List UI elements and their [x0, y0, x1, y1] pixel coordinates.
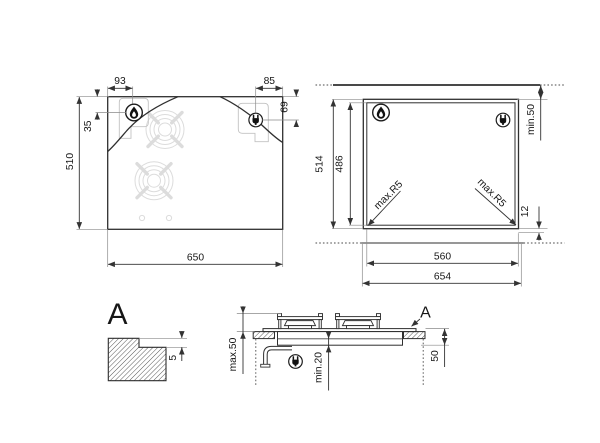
burner-profile-right: [336, 314, 381, 329]
section-a-label: A: [420, 305, 431, 322]
dim-93-label: 93: [114, 76, 126, 87]
detail-a-callout: A: [412, 305, 432, 327]
tear-curve-left: [108, 97, 178, 152]
dim-wall-clearance: min.50: [517, 85, 548, 140]
max-50-label: max.50: [228, 337, 239, 371]
plug-icon: [289, 355, 303, 369]
gas-pipe: [264, 346, 292, 364]
dim-50-label: 50: [430, 350, 441, 362]
dim-hob-width: 650: [108, 230, 283, 267]
dim-rear-gap: 12: [519, 206, 548, 241]
min-20-label: min.20: [313, 352, 324, 383]
plug-icon: [249, 113, 263, 127]
dim-burner-offset-y: 35: [77, 89, 127, 132]
min-50-label: min.50: [526, 104, 537, 135]
detail-a: A 5: [107, 298, 187, 381]
dim-514-label: 514: [314, 155, 325, 172]
dim-35-label: 35: [83, 120, 94, 132]
detail-a-label: A: [107, 298, 127, 331]
dim-486-label: 486: [334, 155, 345, 172]
dim-5-label: 5: [168, 355, 179, 361]
worktop-rebate-block: [108, 338, 166, 380]
flame-icon: [126, 104, 143, 121]
hob-top-view: 93 85 35 69 510: [65, 76, 299, 267]
burner-grate-front-icon: [135, 162, 173, 200]
cutout-rect: [367, 103, 515, 225]
dim-560-label: 560: [434, 251, 451, 262]
dim-654-label: 654: [434, 271, 451, 282]
flame-icon: [373, 104, 390, 121]
worktop-left-block: [253, 332, 274, 339]
dim-cutout-width: 560: [367, 229, 519, 266]
dim-85-label: 85: [264, 76, 276, 87]
burner-profile-left: [278, 314, 323, 329]
burner-grate-rear-icon: [146, 111, 184, 149]
gas-pipe-end: [261, 364, 270, 367]
technical-drawing-page: 93 85 35 69 510: [0, 0, 600, 443]
plug-icon: [496, 113, 510, 127]
worktop-right-block: [404, 332, 426, 339]
installation-section-view: max.50 min.20 50 A: [228, 305, 449, 391]
technical-drawing: 93 85 35 69 510: [0, 0, 600, 443]
cutout-plan-view: max.R5 max.R5 min.50 12 514: [314, 85, 564, 287]
dim-socket-offset-y: 69: [262, 90, 299, 127]
dim-650-label: 650: [187, 252, 204, 263]
dim-12-label: 12: [520, 206, 531, 218]
igniter-dot-icon: [166, 215, 171, 220]
max-r5-left-label: max.R5: [372, 179, 405, 212]
dim-69-label: 69: [280, 101, 291, 113]
igniter-dot-icon: [139, 215, 144, 220]
corner-radius-left: max.R5: [368, 179, 405, 226]
corner-radius-right: max.R5: [475, 177, 516, 225]
dim-hob-depth: 510: [65, 97, 108, 229]
dim-510-label: 510: [65, 153, 76, 170]
dim-outer-width: 654: [362, 244, 521, 287]
dim-cutout-depth: 486: [334, 103, 366, 225]
dim-height-above: max.50: [228, 306, 281, 374]
